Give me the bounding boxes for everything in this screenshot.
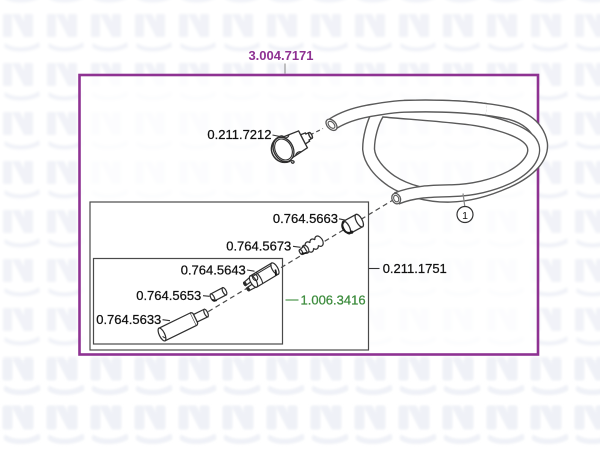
svg-text:1.006.3416: 1.006.3416 — [301, 292, 366, 307]
svg-text:0.764.5663: 0.764.5663 — [273, 211, 338, 226]
svg-text:0.211.1751: 0.211.1751 — [383, 261, 447, 276]
svg-text:0.764.5653: 0.764.5653 — [136, 288, 201, 303]
svg-text:0.764.5673: 0.764.5673 — [226, 239, 291, 254]
svg-text:0.764.5643: 0.764.5643 — [181, 262, 246, 277]
svg-text:3.004.7171: 3.004.7171 — [248, 48, 313, 63]
svg-text:1: 1 — [462, 210, 468, 222]
svg-text:0.764.5633: 0.764.5633 — [96, 312, 161, 327]
svg-text:0.211.7212: 0.211.7212 — [207, 127, 271, 142]
